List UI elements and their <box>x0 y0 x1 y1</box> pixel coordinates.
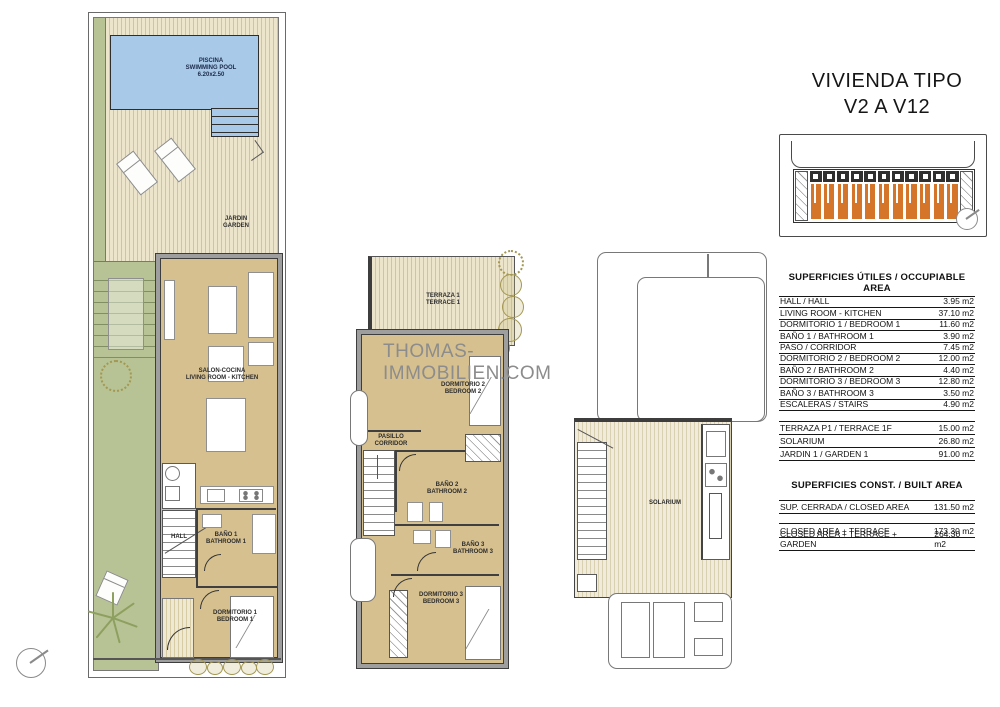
door-arc <box>200 590 219 609</box>
shrub-icon <box>189 659 207 675</box>
row-label: LIVING ROOM - KITCHEN <box>780 308 882 318</box>
row-value: 12.00 m2 <box>939 353 974 363</box>
siteplan-unit <box>864 171 876 221</box>
row-value: 131.50 m2 <box>934 502 974 512</box>
siteplan-unit <box>837 171 849 221</box>
wardrobe <box>389 590 408 658</box>
row-label: BAÑO 2 / BATHROOM 2 <box>780 365 874 375</box>
door-arc <box>417 552 436 571</box>
sheet-title: VIVIENDA TIPO V2 A V12 <box>788 68 986 120</box>
planter-icon <box>709 493 722 539</box>
row-label: DORMITORIO 2 / BEDROOM 2 <box>780 353 900 363</box>
shrub-icon <box>500 274 522 296</box>
ground-floor-house: SALON-COCINA LIVING ROOM - KITCHEN HALL … <box>156 254 282 662</box>
living-room-label: SALON-COCINA LIVING ROOM - KITCHEN <box>174 368 270 382</box>
bed1 <box>230 596 274 658</box>
dining-table <box>206 398 246 452</box>
row-value: 3.50 m2 <box>943 388 974 398</box>
row-value: 4.90 m2 <box>943 399 974 409</box>
title-line2: V2 A V12 <box>788 94 986 120</box>
stairs-ground <box>162 510 196 578</box>
sink-icon <box>207 489 225 502</box>
door-arc <box>399 454 416 471</box>
row-label: DORMITORIO 3 / BEDROOM 3 <box>780 376 900 386</box>
row-value: 3.90 m2 <box>943 331 974 341</box>
row-value: 264.30 m2 <box>934 529 974 549</box>
row-label: CLOSED AREA + TERRACE + GARDEN <box>780 529 934 549</box>
bed1-label: DORMITORIO 1 BEDROOM 1 <box>208 610 262 624</box>
row-value: 26.80 m2 <box>939 436 974 446</box>
built-header: SUPERFICIES CONST. / BUILT AREA <box>779 480 975 491</box>
hall-label: HALL <box>164 534 194 541</box>
shrub-icon <box>256 659 274 675</box>
row-label: PASO / CORRIDOR <box>780 342 856 352</box>
watermark: THOMAS-IMMOBILIEN.COM <box>383 341 623 385</box>
shrub-icon <box>207 661 223 675</box>
sun-lounger <box>154 137 196 182</box>
row-label: TERRAZA P1 / TERRACE 1F <box>780 423 892 433</box>
pool-steps <box>211 108 259 137</box>
north-arrow-icon <box>243 140 264 161</box>
washer-icon <box>165 466 180 481</box>
row-value: 37.10 m2 <box>939 308 974 318</box>
stairs-solarium <box>577 442 607 560</box>
dryer-icon <box>165 486 180 501</box>
roof-outline-lower <box>608 593 732 669</box>
stairs-first <box>363 450 395 536</box>
row-value: 11.60 m2 <box>939 319 974 329</box>
table-row: LIVING ROOM - KITCHEN 37.10 m2 <box>779 308 975 319</box>
row-value: 3.95 m2 <box>943 296 974 306</box>
siteplan-unit <box>851 171 863 221</box>
vent <box>694 638 723 656</box>
bath1-label: BAÑO 1 BATHROOM 1 <box>200 532 252 546</box>
bath3-label: BAÑO 3 BATHROOM 3 <box>445 542 501 556</box>
occupiable-header: SUPERFICIES ÚTILES / OCCUPIABLE AREA <box>779 272 975 294</box>
shrub-icon <box>502 296 524 318</box>
table-row: BAÑO 3 / BATHROOM 3 3.50 m2 <box>779 388 975 399</box>
bath2-sink <box>407 502 423 522</box>
row-label: HALL / HALL <box>780 296 829 306</box>
sofa <box>248 272 274 338</box>
table-row: SOLARIUM 26.80 m2 <box>779 435 975 448</box>
bed3-label: DORMITORIO 3 BEDROOM 3 <box>411 592 471 606</box>
closet <box>465 434 501 462</box>
solarium-label: SOLARIUM <box>633 500 697 507</box>
floorplan-sheet: PISCINA SWIMMING POOL 6.20x2.50 JARDIN G… <box>0 0 1000 707</box>
solarium-deck: SOLARIUM <box>574 418 732 598</box>
bush-icon <box>100 360 132 392</box>
bath1-shower <box>252 514 276 554</box>
vent <box>694 602 723 622</box>
table-row: BAÑO 1 / BATHROOM 1 3.90 m2 <box>779 331 975 342</box>
ground-floor-plan: PISCINA SWIMMING POOL 6.20x2.50 JARDIN G… <box>88 12 286 678</box>
garden-deck: PISCINA SWIMMING POOL 6.20x2.50 JARDIN G… <box>105 17 279 263</box>
step-notch <box>577 574 597 592</box>
balcony-outline <box>350 538 376 602</box>
terrace-below-outline <box>637 277 765 422</box>
compass-icon <box>16 648 46 678</box>
garden-side <box>93 261 159 671</box>
table-row: TERRAZA P1 / TERRACE 1F 15.00 m2 <box>779 422 975 435</box>
door-arc <box>393 578 412 597</box>
door-arc <box>204 554 221 571</box>
siteplan-unit <box>905 171 917 221</box>
siteplan-unit <box>878 171 890 221</box>
palm-tree-icon <box>112 592 114 594</box>
siteplan-units <box>793 169 975 223</box>
table-row: PASO / CORRIDOR 7.45 m2 <box>779 343 975 354</box>
siteplan-endcell <box>795 171 808 221</box>
row-value: 7.45 m2 <box>943 342 974 352</box>
cooktop-icon <box>239 489 263 502</box>
coffee-table <box>208 286 237 334</box>
table-row: DORMITORIO 1 / BEDROOM 1 11.60 m2 <box>779 320 975 331</box>
title-line1: VIVIENDA TIPO <box>788 68 986 94</box>
table-row: DORMITORIO 3 / BEDROOM 3 12.80 m2 <box>779 377 975 388</box>
bath2-label: BAÑO 2 BATHROOM 2 <box>419 482 475 496</box>
table-row: JARDIN 1 / GARDEN 1 91.00 m2 <box>779 448 975 461</box>
siteplan-key <box>779 134 987 237</box>
armchair <box>248 342 274 366</box>
bath2-toilet <box>429 502 443 522</box>
table-row: SUP. CERRADA / CLOSED AREA 131.50 m2 <box>779 501 975 514</box>
occupiable-table: HALL / HALL 3.95 m2 LIVING ROOM - KITCHE… <box>779 296 975 411</box>
summer-kitchen <box>701 424 730 560</box>
kitchen-counter <box>200 486 274 504</box>
skylight <box>621 602 650 658</box>
first-floor-plan: TERRAZA 1 TERRACE 1 DORMITORIO 2 BEDROOM… <box>350 250 536 676</box>
table-row: BAÑO 2 / BATHROOM 2 4.40 m2 <box>779 365 975 376</box>
sink-icon <box>705 463 727 487</box>
row-value: 4.40 m2 <box>943 365 974 375</box>
row-value: 91.00 m2 <box>939 449 974 459</box>
table-row: DORMITORIO 2 / BEDROOM 2 12.00 m2 <box>779 354 975 365</box>
sun-lounger <box>116 150 158 195</box>
corridor-label: PASILLO CORRIDOR <box>367 434 415 448</box>
solarium-plan: SOLARIUM <box>570 250 770 676</box>
tv-unit <box>164 280 175 340</box>
table-row: HALL / HALL 3.95 m2 <box>779 297 975 308</box>
occupiable-table-2: TERRAZA P1 / TERRACE 1F 15.00 m2 SOLARIU… <box>779 421 975 461</box>
outdoor-table <box>108 278 144 350</box>
siteplan-unit <box>810 171 822 221</box>
row-label: SOLARIUM <box>780 436 824 446</box>
row-value: 12.80 m2 <box>939 376 974 386</box>
balcony-outline <box>350 390 368 446</box>
compass-icon <box>956 208 978 230</box>
row-label: SUP. CERRADA / CLOSED AREA <box>780 502 909 512</box>
siteplan-unit <box>892 171 904 221</box>
row-label: DORMITORIO 1 / BEDROOM 1 <box>780 319 900 329</box>
shrub-icon <box>241 661 257 675</box>
row-value: 15.00 m2 <box>939 423 974 433</box>
pergola <box>94 270 158 358</box>
bath3-sink <box>413 530 431 544</box>
siteplan-unit <box>933 171 945 221</box>
totals-table: CLOSED AREA + TERRACE 173.30 m2 CLOSED A… <box>779 523 975 551</box>
siteplan-common-area <box>791 141 975 168</box>
laundry <box>162 463 196 509</box>
pool-label: PISCINA SWIMMING POOL 6.20x2.50 <box>171 58 251 79</box>
bush-icon <box>498 250 524 276</box>
skylight <box>653 602 685 658</box>
table-row: CLOSED AREA + TERRACE + GARDEN 264.30 m2 <box>779 538 975 552</box>
built-table: SUP. CERRADA / CLOSED AREA 131.50 m2 <box>779 500 975 514</box>
swimming-pool: PISCINA SWIMMING POOL 6.20x2.50 <box>110 35 259 110</box>
row-label: JARDIN 1 / GARDEN 1 <box>780 449 868 459</box>
row-label: BAÑO 1 / BATHROOM 1 <box>780 331 874 341</box>
row-label: BAÑO 3 / BATHROOM 3 <box>780 388 874 398</box>
table-row: ESCALERAS / STAIRS 4.90 m2 <box>779 400 975 411</box>
shrub-icon <box>223 659 241 675</box>
garden-label: JARDIN GARDEN <box>206 216 266 230</box>
siteplan-unit <box>919 171 931 221</box>
row-label: ESCALERAS / STAIRS <box>780 399 868 409</box>
siteplan-unit <box>823 171 835 221</box>
bath1-sink <box>202 514 222 528</box>
entrance-path <box>162 598 194 658</box>
terrace1-label: TERRAZA 1 TERRACE 1 <box>412 293 474 307</box>
cabinet-icon <box>706 431 726 457</box>
